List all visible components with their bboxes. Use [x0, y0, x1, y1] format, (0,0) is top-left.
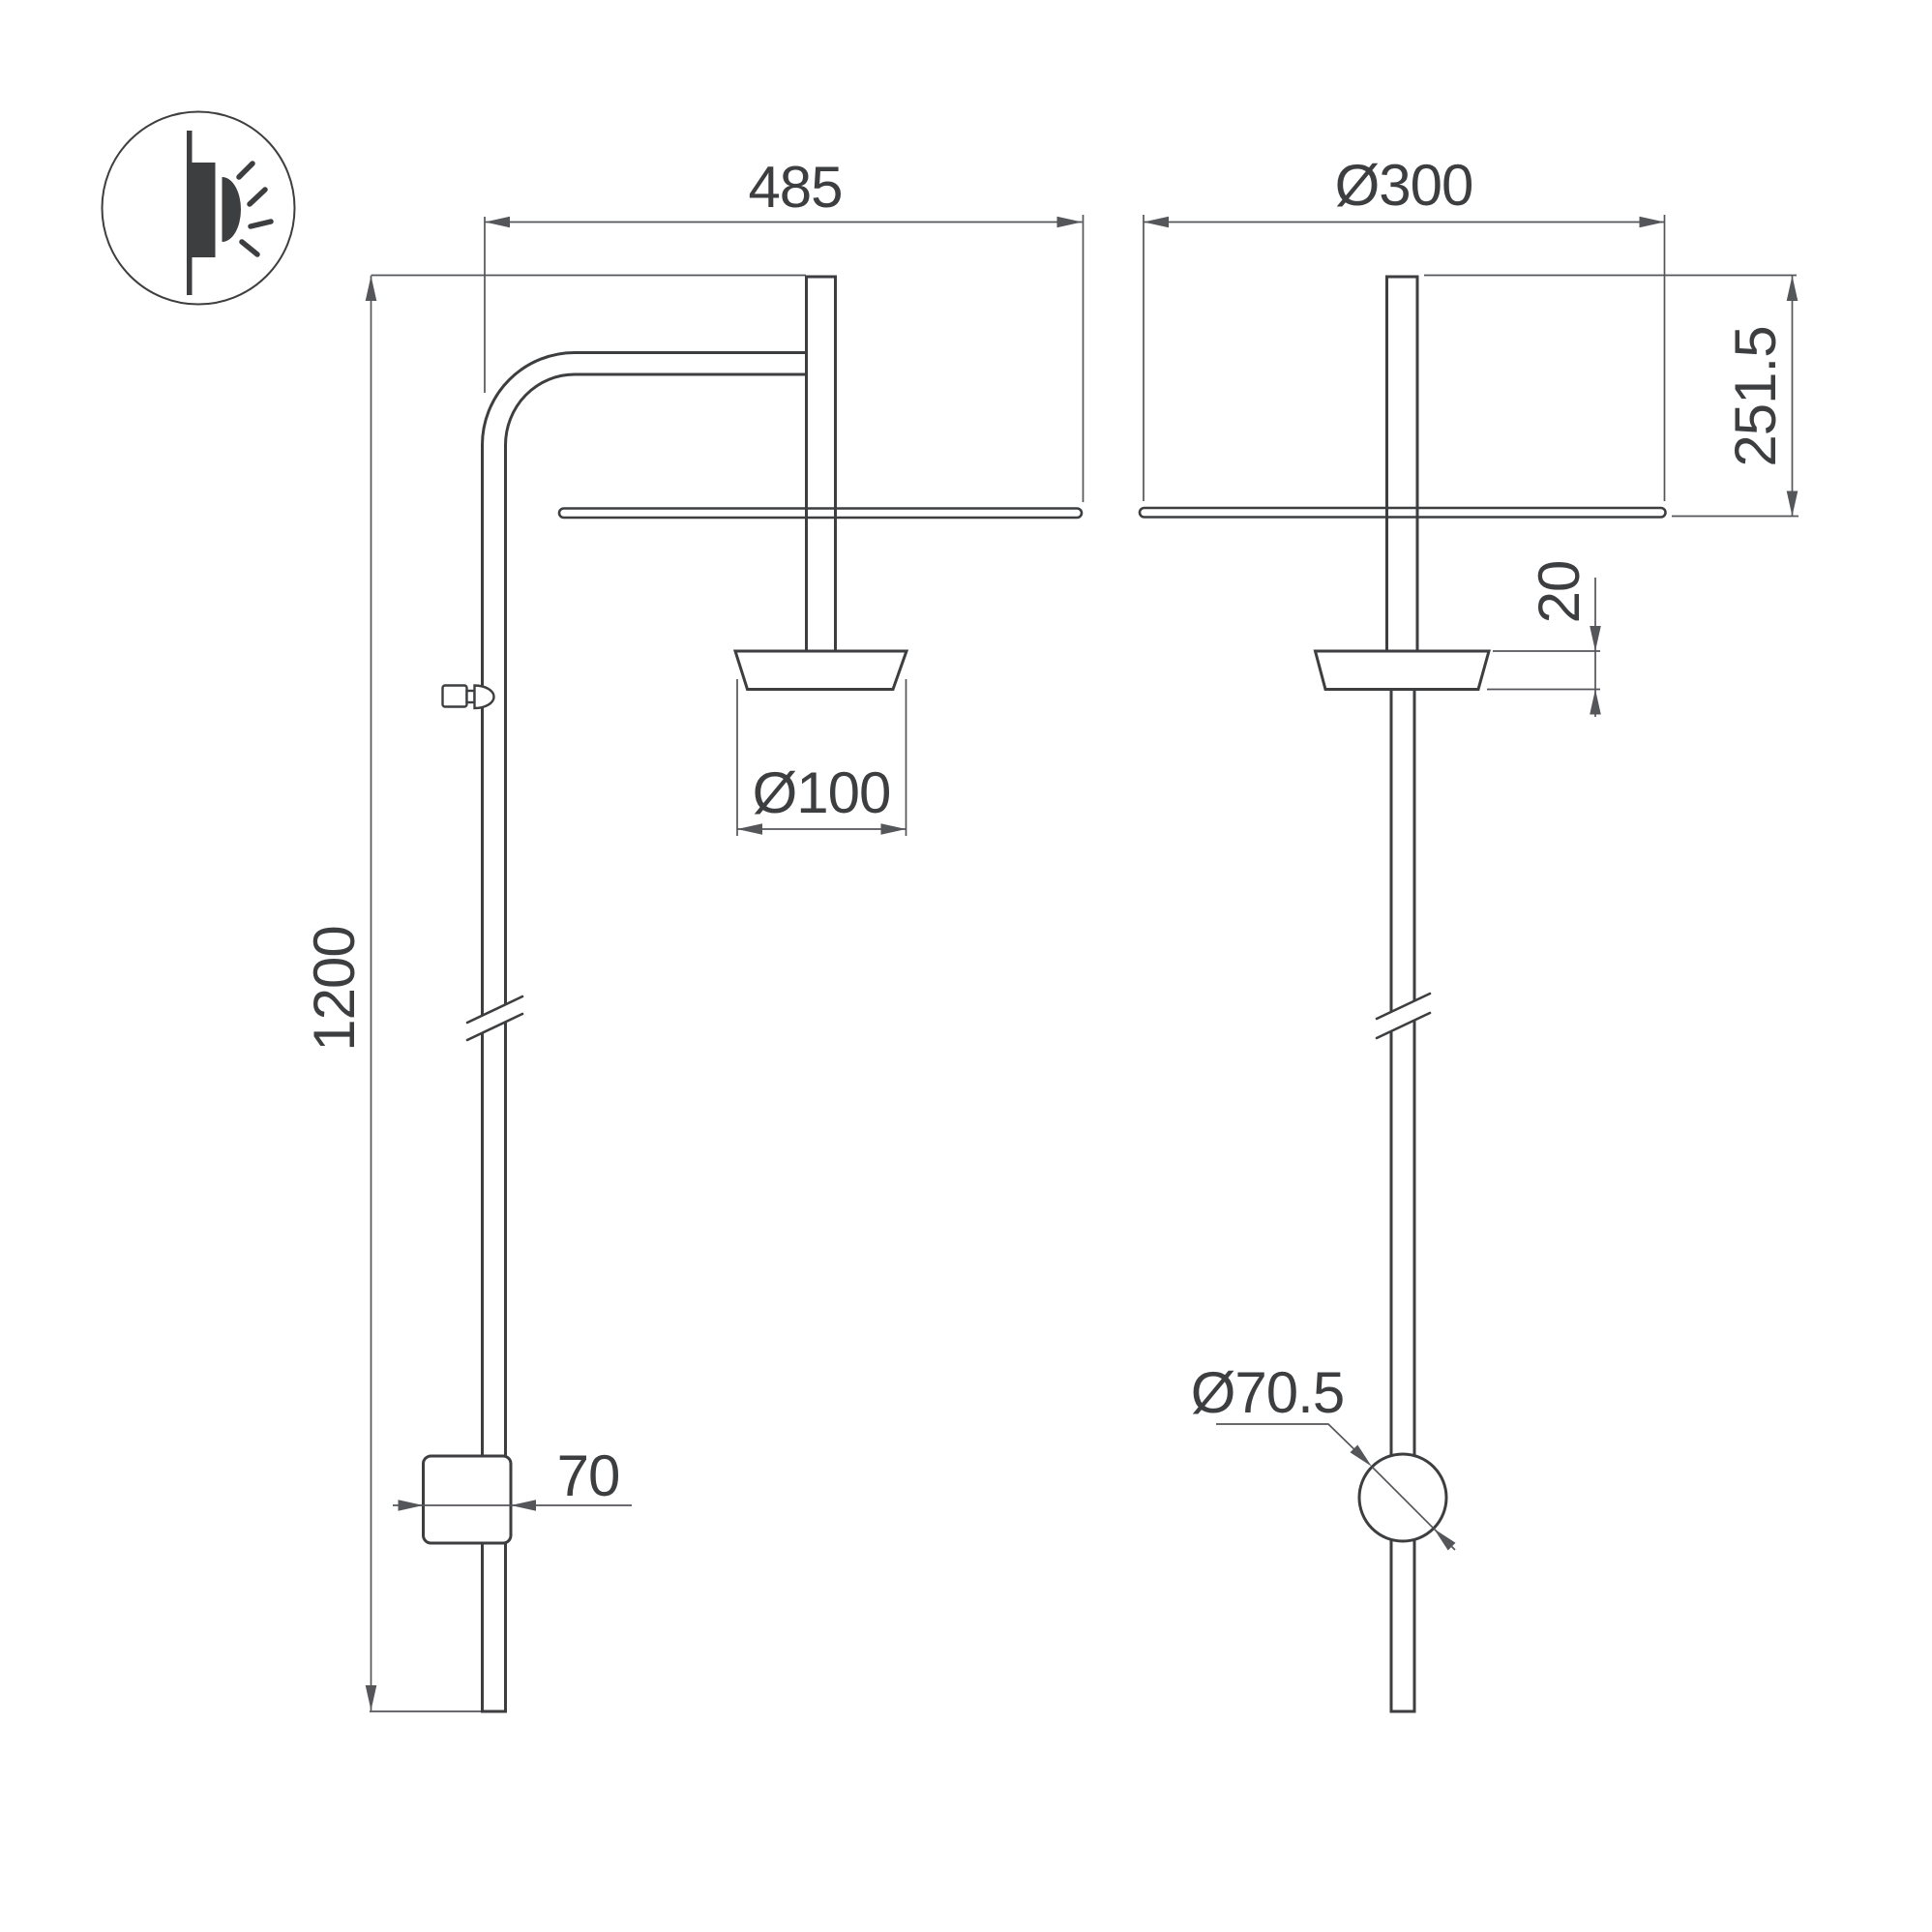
- front-view: [1140, 277, 1666, 1711]
- arrow-left-icon: [1144, 217, 1169, 228]
- arrow-up-icon: [1787, 276, 1798, 301]
- light-rays-icon: [239, 163, 271, 254]
- product-type-icon: [103, 112, 295, 305]
- dim-label-knob-diameter: Ø70.5: [1191, 1360, 1344, 1425]
- arrow-up-icon: [366, 276, 377, 301]
- arrow-right-icon: [1640, 217, 1665, 228]
- dimension-head-diameter: Ø100: [737, 679, 907, 836]
- arrow-up-icon: [1590, 690, 1601, 715]
- side-view-dimensions: 485 1200 Ø100 70: [302, 155, 1084, 1711]
- lamp-head-cone: [735, 651, 907, 690]
- dim-label-width: 485: [748, 155, 842, 220]
- dim-label-disc-diameter: Ø300: [1335, 153, 1473, 218]
- dimension-1200: 1200: [302, 276, 806, 1712]
- arrow-right-icon: [399, 1500, 424, 1511]
- dimension-485: 485: [485, 155, 1084, 502]
- dim-label-top-to-disc: 251.5: [1723, 326, 1788, 466]
- dim-label-head-diameter: Ø100: [753, 760, 891, 825]
- knob-dome: [475, 686, 494, 709]
- arrow-left-icon: [511, 1500, 536, 1511]
- front-view-dimensions: Ø300 251.5 20 Ø70.5: [1144, 153, 1798, 1551]
- arrow-down-icon: [1590, 626, 1601, 651]
- lamp-body-icon: [191, 163, 216, 257]
- pipe-break-mark-front: [1377, 994, 1430, 1038]
- knob-base: [443, 686, 467, 707]
- dim-label-box-width: 70: [557, 1443, 620, 1508]
- switch-knob: [443, 686, 494, 709]
- dim-label-head-height: 20: [1527, 561, 1591, 624]
- stem-front: [1387, 277, 1418, 651]
- arrow-right-icon: [1057, 217, 1083, 228]
- dimension-head-height: 20: [1487, 561, 1601, 717]
- side-view: [424, 277, 1083, 1711]
- arrow-down-icon: [1787, 491, 1798, 517]
- arrow-down-icon: [366, 1685, 377, 1710]
- stem: [807, 277, 836, 651]
- arm-tube: [483, 353, 807, 446]
- dim-label-height: 1200: [302, 926, 367, 1051]
- arrow-left-icon: [485, 217, 510, 228]
- lamp-head-cone-front: [1316, 651, 1490, 690]
- dimension-top-to-disc: 251.5: [1424, 276, 1798, 517]
- pole-front: [1390, 690, 1416, 1712]
- technical-drawing-page: 485 1200 Ø100 70: [0, 0, 1932, 1932]
- mounting-box: [424, 1456, 512, 1543]
- pipe-break-mark-side: [467, 996, 522, 1040]
- light-halfdome-icon: [223, 177, 242, 242]
- wall-lamp-dimension-drawing: 485 1200 Ø100 70: [0, 0, 1932, 1932]
